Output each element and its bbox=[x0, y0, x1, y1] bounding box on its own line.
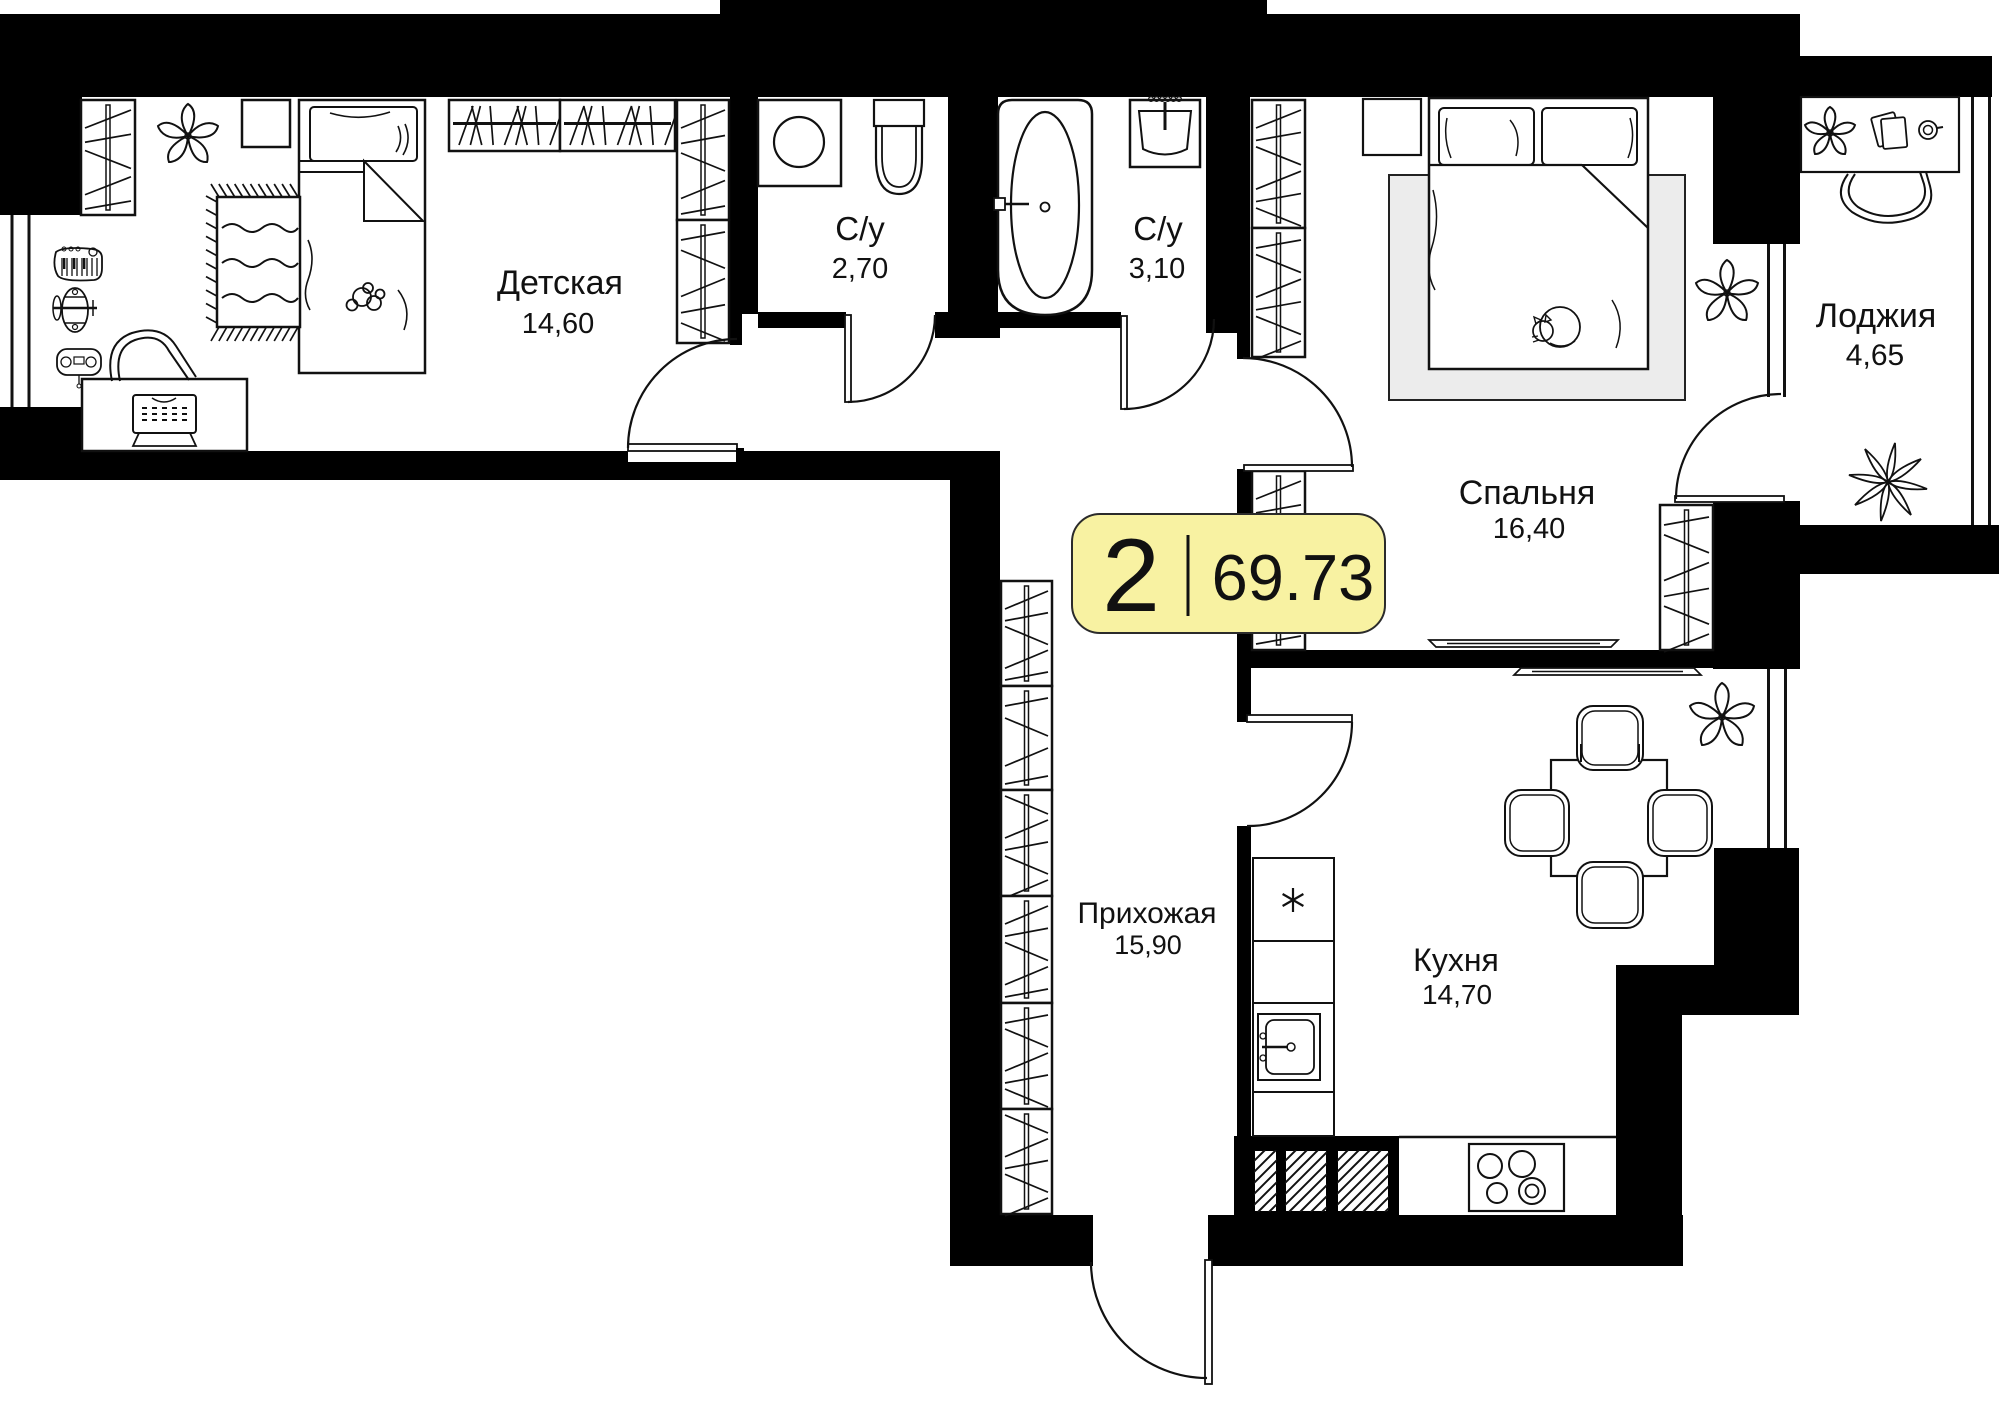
svg-text:С/у: С/у bbox=[1133, 210, 1183, 247]
svg-text:Лоджия: Лоджия bbox=[1816, 297, 1936, 335]
svg-text:С/у: С/у bbox=[835, 210, 885, 247]
svg-text:Кухня: Кухня bbox=[1413, 942, 1499, 978]
svg-text:2: 2 bbox=[1102, 518, 1160, 634]
svg-text:2,70: 2,70 bbox=[832, 253, 888, 285]
svg-text:16,40: 16,40 bbox=[1493, 513, 1566, 545]
svg-text:Спальня: Спальня bbox=[1459, 474, 1596, 512]
svg-text:14,60: 14,60 bbox=[522, 308, 595, 340]
svg-text:15,90: 15,90 bbox=[1114, 930, 1182, 960]
svg-text:69.73: 69.73 bbox=[1212, 541, 1375, 614]
svg-text:Детская: Детская bbox=[497, 264, 623, 302]
svg-text:4,65: 4,65 bbox=[1846, 339, 1904, 372]
svg-text:3,10: 3,10 bbox=[1129, 253, 1185, 285]
svg-text:14,70: 14,70 bbox=[1422, 979, 1492, 1010]
svg-text:Прихожая: Прихожая bbox=[1077, 897, 1216, 930]
